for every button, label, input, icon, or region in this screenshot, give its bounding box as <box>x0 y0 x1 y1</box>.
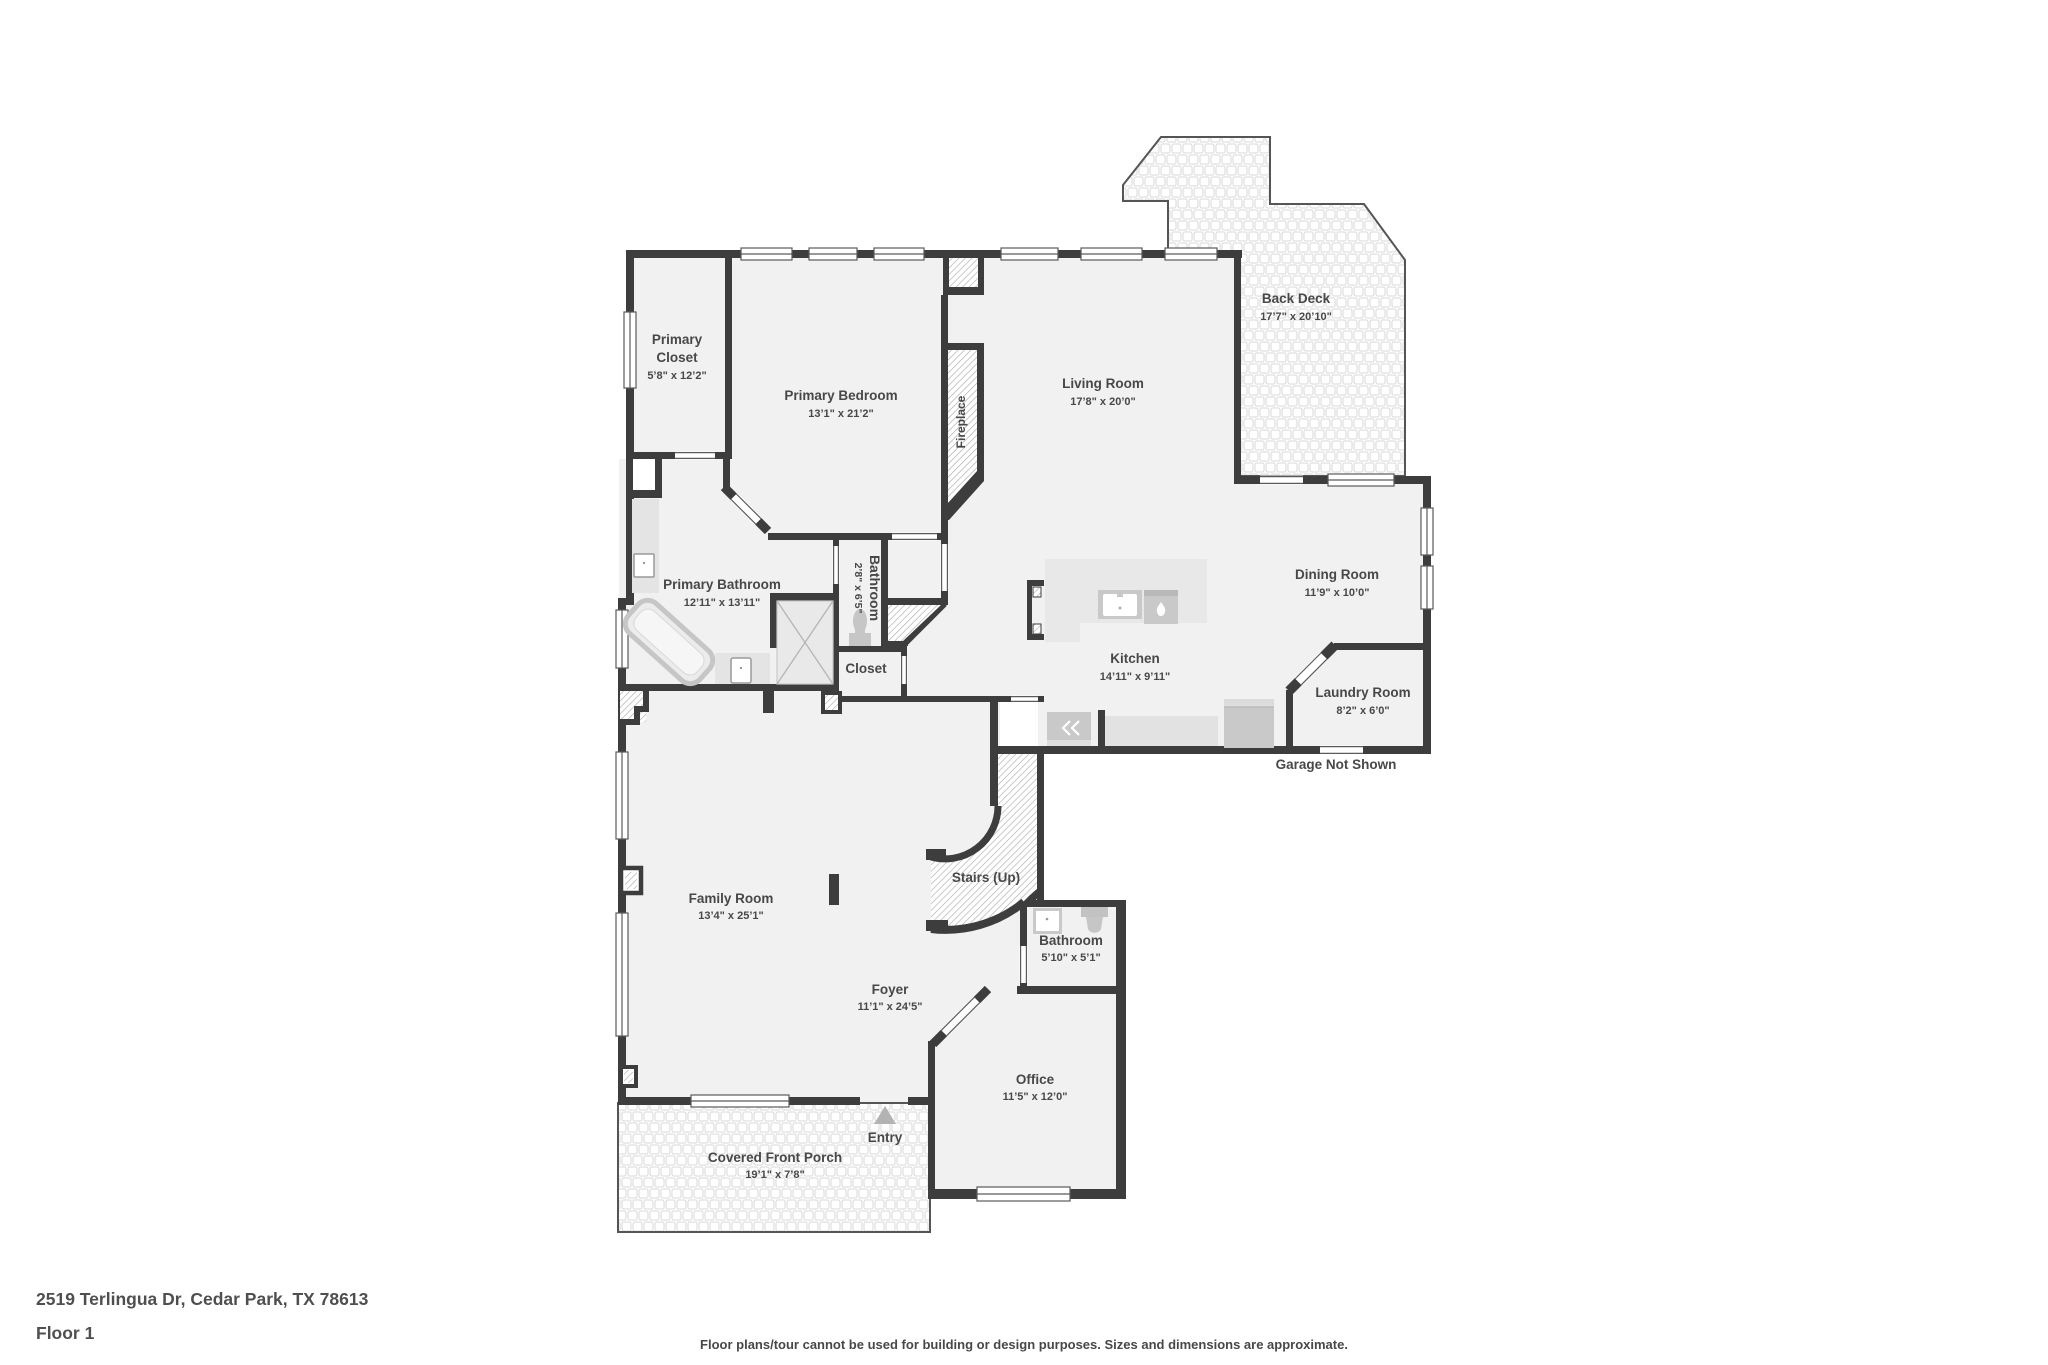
svg-text:Closet: Closet <box>845 661 887 676</box>
svg-text:8’2" x 6’0": 8’2" x 6’0" <box>1336 705 1389 717</box>
svg-text:13’4" x 25’1": 13’4" x 25’1" <box>698 910 763 922</box>
svg-text:Office: Office <box>1016 1072 1055 1087</box>
svg-text:Closet: Closet <box>656 350 698 365</box>
svg-text:Laundry Room: Laundry Room <box>1315 685 1410 700</box>
svg-text:Foyer: Foyer <box>872 982 910 997</box>
svg-text:Primary: Primary <box>652 332 703 347</box>
svg-text:Fireplace: Fireplace <box>954 395 968 448</box>
svg-text:Living Room: Living Room <box>1062 376 1144 391</box>
svg-text:5’8" x 12’2": 5’8" x 12’2" <box>647 370 706 382</box>
svg-text:17’8" x 20’0": 17’8" x 20’0" <box>1070 396 1135 408</box>
svg-text:2’8" x 6’5": 2’8" x 6’5" <box>852 563 864 614</box>
svg-text:Bathroom: Bathroom <box>867 555 883 621</box>
svg-text:Primary Bathroom: Primary Bathroom <box>663 577 781 592</box>
svg-text:Floor 1: Floor 1 <box>36 1323 95 1343</box>
svg-text:Stairs (Up): Stairs (Up) <box>952 870 1020 885</box>
svg-text:Dining Room: Dining Room <box>1295 567 1379 582</box>
svg-text:14’11" x 9’11": 14’11" x 9’11" <box>1100 671 1170 683</box>
svg-text:11’9" x 10’0": 11’9" x 10’0" <box>1305 587 1370 599</box>
svg-text:Garage Not Shown: Garage Not Shown <box>1276 757 1397 772</box>
svg-text:17’7" x 20’10": 17’7" x 20’10" <box>1260 311 1332 323</box>
svg-text:11’1" x 24’5": 11’1" x 24’5" <box>858 1001 923 1013</box>
svg-text:Covered Front Porch: Covered Front Porch <box>708 1150 842 1165</box>
svg-text:Back Deck: Back Deck <box>1262 291 1331 306</box>
svg-text:Primary Bedroom: Primary Bedroom <box>784 388 897 403</box>
svg-text:Bathroom: Bathroom <box>1039 933 1103 948</box>
svg-text:11’5" x 12’0": 11’5" x 12’0" <box>1003 1091 1068 1103</box>
svg-text:Entry: Entry <box>868 1130 903 1145</box>
svg-text:Kitchen: Kitchen <box>1110 651 1160 666</box>
svg-text:Family Room: Family Room <box>689 891 774 906</box>
svg-text:2519 Terlingua Dr, Cedar Park,: 2519 Terlingua Dr, Cedar Park, TX 78613 <box>36 1289 369 1309</box>
svg-text:Floor plans/tour cannot be use: Floor plans/tour cannot be used for buil… <box>700 1337 1348 1352</box>
svg-text:12’11" x 13’11": 12’11" x 13’11" <box>684 597 761 609</box>
svg-text:13’1" x 21’2": 13’1" x 21’2" <box>808 408 873 420</box>
svg-text:19’1" x 7’8": 19’1" x 7’8" <box>745 1169 804 1181</box>
svg-text:5’10" x 5’1": 5’10" x 5’1" <box>1041 952 1100 964</box>
